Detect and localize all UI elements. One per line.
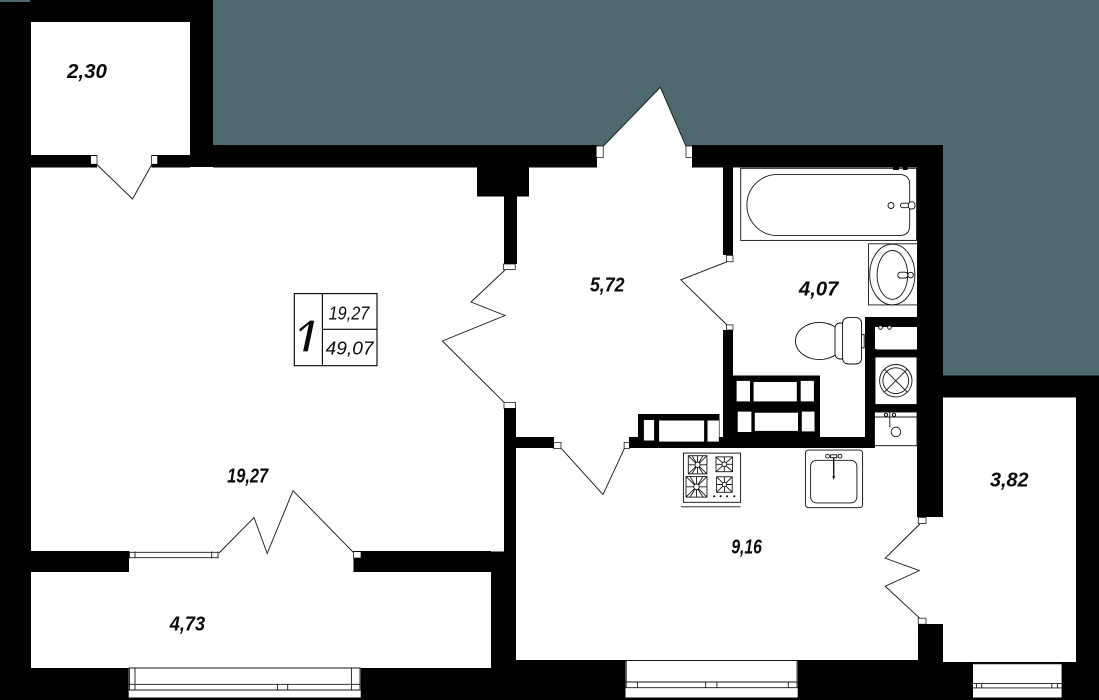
svg-text:49,07: 49,07 xyxy=(326,338,375,358)
svg-text:19,27: 19,27 xyxy=(329,303,371,323)
svg-text:5,72: 5,72 xyxy=(590,275,625,297)
svg-text:19,27: 19,27 xyxy=(227,465,269,487)
svg-text:4,07: 4,07 xyxy=(798,279,839,301)
svg-text:4,73: 4,73 xyxy=(169,614,205,636)
svg-text:3,82: 3,82 xyxy=(990,470,1029,492)
svg-text:9,16: 9,16 xyxy=(731,537,762,559)
svg-text:2,30: 2,30 xyxy=(66,61,107,83)
